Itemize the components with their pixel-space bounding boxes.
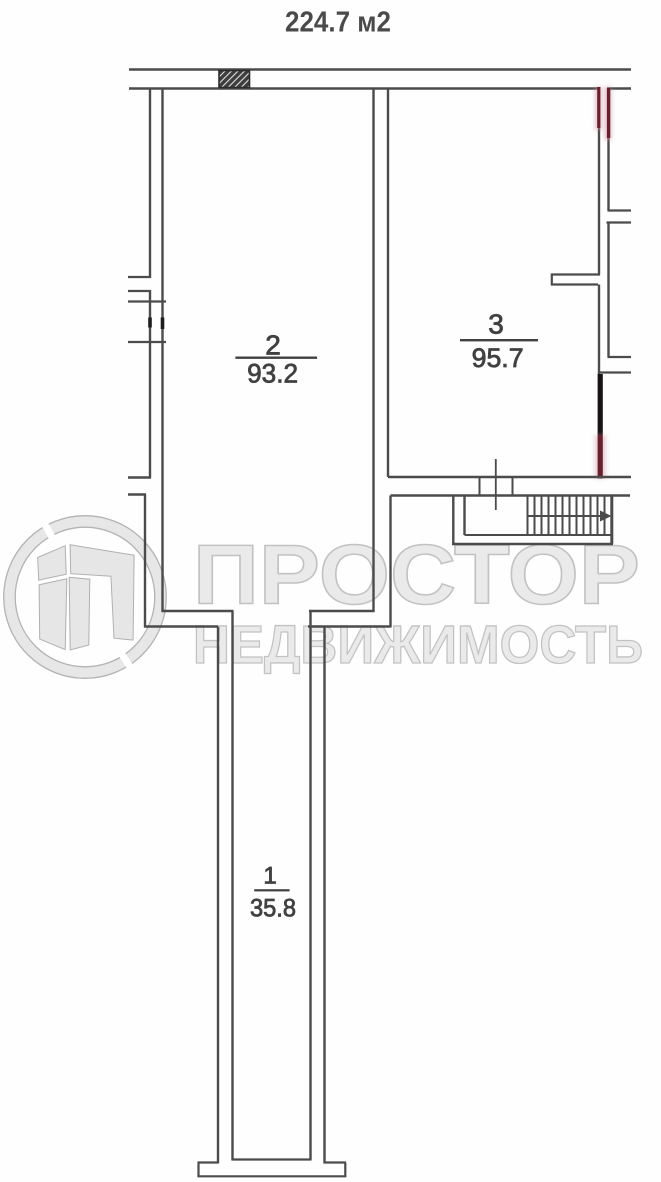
svg-text:НЕДВИЖИМОСТЬ: НЕДВИЖИМОСТЬ [193,615,643,675]
svg-text:93.2: 93.2 [247,359,298,389]
svg-text:35.8: 35.8 [250,895,296,923]
svg-text:95.7: 95.7 [472,343,524,373]
svg-text:1: 1 [263,862,276,889]
svg-text:2: 2 [265,330,281,361]
svg-text:ПРОСТОР: ПРОСТОР [193,528,640,622]
svg-text:224.7 м2: 224.7 м2 [285,7,391,39]
svg-text:3: 3 [488,309,504,340]
